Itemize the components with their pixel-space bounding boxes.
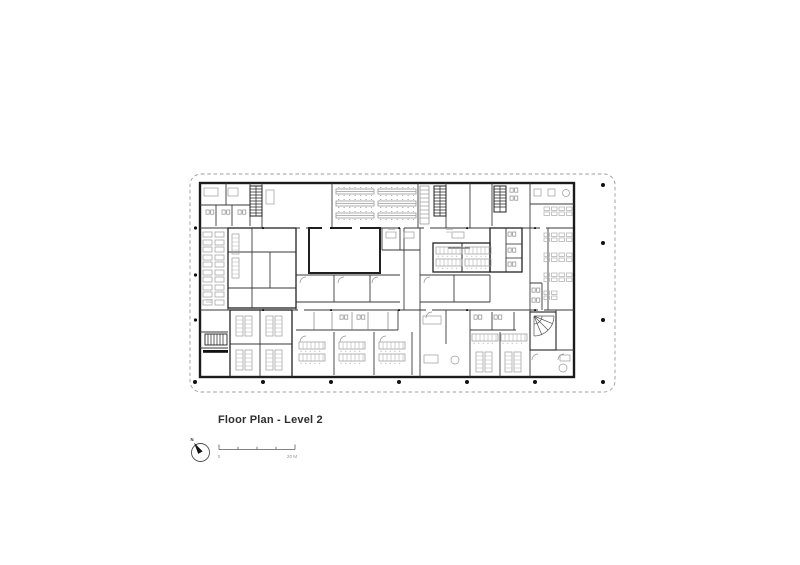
central-hall (309, 228, 380, 273)
north-arrow-icon: N (190, 437, 209, 462)
scale-start-label: 0 (218, 454, 221, 459)
north-label: N (190, 437, 193, 442)
scale-end-label: 20 M (287, 454, 297, 459)
drawing-sheet: Floor Plan - Level 2 N 0 20 M (0, 0, 800, 565)
title-block: Floor Plan - Level 2 N 0 20 M (190, 414, 322, 462)
building (200, 183, 575, 377)
floor-plan-drawing: Floor Plan - Level 2 N 0 20 M (0, 0, 800, 565)
scale-bar: 0 20 M (218, 445, 298, 460)
drawing-title: Floor Plan - Level 2 (218, 414, 323, 426)
